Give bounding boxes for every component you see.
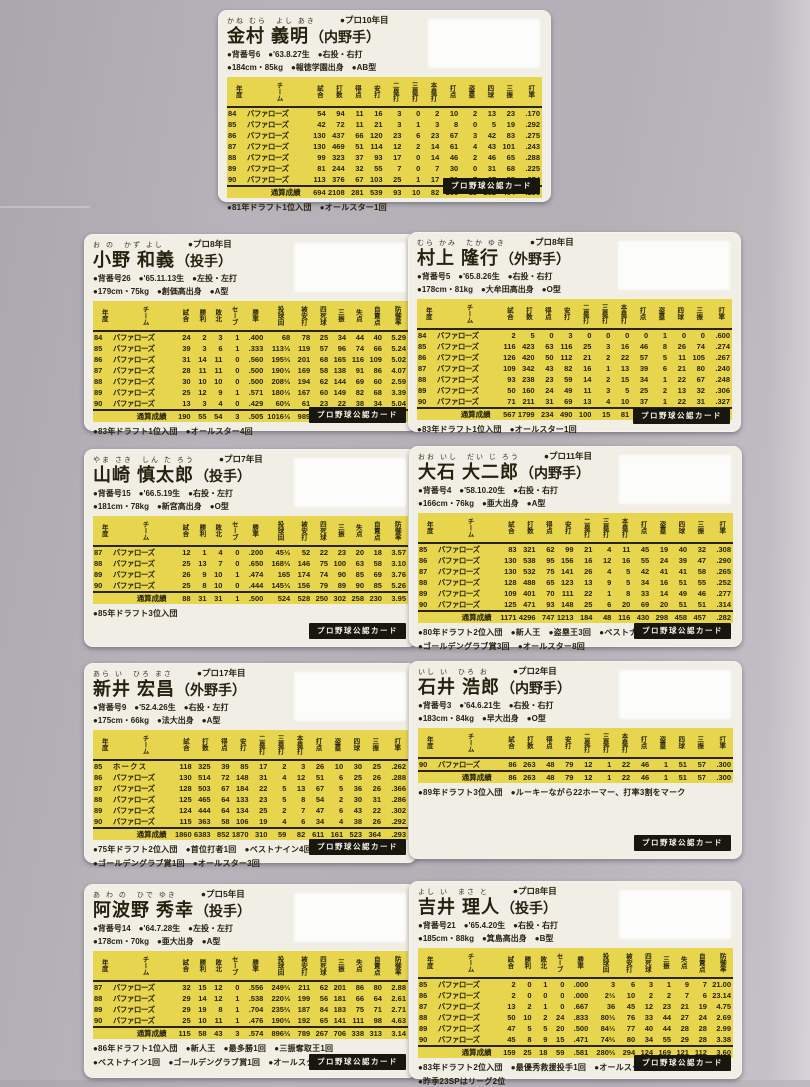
stats-cell: 88 [227, 152, 247, 163]
stats-header-cell: 勝利 [518, 948, 534, 978]
stats-cell: .290 [708, 555, 733, 566]
stats-cell: バファローズ [247, 141, 309, 152]
stats-cell: 66 [348, 993, 366, 1004]
stats-cell: 14 [193, 993, 209, 1004]
pro-year-label: ●プロ17年目 [197, 667, 246, 679]
stats-table: 年度チーム試合打数得点安打二塁打三塁打本塁打打点盗塁四球三振打率84バファローズ… [417, 299, 732, 420]
stats-cell: 88 [93, 993, 113, 1004]
stats-header-cell: 試合 [500, 513, 519, 543]
stats-header-cell: チーム [438, 728, 500, 758]
stats-cell: 3.10 [384, 558, 408, 569]
stats-cell: 111 [348, 1015, 366, 1027]
stats-cell: 65 [312, 1015, 330, 1027]
stats-header-cell: 本塁打 [612, 299, 631, 329]
stats-row: 90バファローズ2510111.476190⅔19265141111984.63 [93, 1015, 408, 1027]
stats-cell: 100 [574, 408, 593, 420]
stats-cell: 6 [594, 599, 613, 611]
stats-cell: .538 [241, 993, 265, 1004]
stats-cell: 325 [194, 760, 213, 772]
card-notes: ●85年ドラフト3位入団 [93, 608, 408, 619]
stats-cell: .274 [707, 341, 732, 352]
stats-header-cell: 三塁打 [403, 77, 422, 107]
stats-cell: 1 [650, 374, 669, 385]
stats-cell: 130 [175, 772, 194, 783]
stats-cell: 211 [292, 981, 312, 993]
stats-cell: 82 [422, 186, 441, 198]
stats-cell: 0 [224, 580, 241, 592]
stats-cell: 45 [632, 543, 651, 555]
stats-row: 88バファローズ12848865123139534165155.252 [418, 577, 733, 588]
blank-label-area [293, 242, 407, 293]
stats-cell: 42 [479, 130, 498, 141]
stats-header-cell: 自責点 [366, 516, 384, 546]
stats-cell: .286 [383, 794, 408, 805]
stats-cell: 85 [348, 569, 366, 580]
card-note: ●ゴールデングラブ賞1回 ●オールスター3回 [93, 858, 408, 869]
card-note: ●86年ドラフト1位入団 ●新人王 ●最多勝1回 ●三振奪取王1回 [93, 1043, 408, 1054]
stats-header-cell: 二塁打 [575, 728, 594, 758]
stats-cell: 55 [689, 577, 708, 588]
stats-cell: .650 [241, 558, 265, 569]
stats-cell: 6 [209, 343, 225, 354]
stats-cell: 852 [213, 828, 232, 840]
player-position: （投手） [176, 253, 232, 269]
stats-cell: 62 [538, 543, 557, 555]
stats-cell: 3 [224, 410, 241, 422]
stats-cell: 184 [576, 611, 595, 623]
stats-cell: 89 [93, 1004, 113, 1015]
stats-cell: .833 [566, 1012, 590, 1023]
stats-cell: 244 [328, 163, 347, 174]
stats-cell: 2 [460, 107, 479, 119]
stats-row: 86バファローズ13051472148314125162526.288 [93, 772, 408, 783]
stats-cell: 23 [655, 1001, 673, 1012]
stats-cell: 112 [556, 352, 575, 363]
stats-cell: 59 [556, 374, 575, 385]
stats-row: 85バファローズ39361.333113⅓119579674665.24 [93, 343, 408, 354]
stats-row: 84バファローズ25030000100.600 [417, 329, 732, 341]
card-note: ●85年ドラフト3位入団 [93, 608, 408, 619]
stats-header-cell: 本塁打 [422, 77, 441, 107]
stats-cell: 74 [688, 341, 707, 352]
stats-cell: 2.59 [384, 376, 408, 387]
pro-year-label: ●プロ11年目 [544, 450, 592, 462]
stats-cell: 13 [175, 398, 193, 410]
stats-cell: 77 [617, 1023, 637, 1034]
stats-header-cell: 勝率 [241, 516, 265, 546]
stats-cell: .277 [708, 588, 733, 599]
stats-cell: 7 [209, 558, 225, 569]
stats-cell: 11 [347, 107, 366, 119]
stats-cell: 118 [175, 760, 194, 772]
stats-row: 89バファローズ269101.474165174749085693.76 [93, 569, 408, 580]
stats-cell: 30 [345, 794, 364, 805]
stats-cell: 57 [689, 758, 708, 771]
stats-cell: 85 [418, 543, 438, 555]
stats-row: 88バファローズ3010100.500208⅔1946214469602.59 [93, 376, 408, 387]
stats-cell: 8 [650, 341, 669, 352]
stats-header-cell: 敗北 [209, 301, 225, 331]
card-note: ●81年ドラフト1位入団 ●オールスター1回 [227, 202, 542, 213]
stats-header-cell: 三振 [330, 951, 348, 981]
stats-cell: 376 [328, 174, 347, 186]
stats-table: 年度チーム試合打数得点安打二塁打三塁打本塁打打点盗塁四球三振打率85バファローズ… [418, 513, 733, 623]
stats-cell: 17 [385, 152, 404, 163]
stats-cell: 130 [500, 555, 519, 566]
stats-cell: .300 [708, 771, 733, 783]
stats-cell: 183 [330, 1004, 348, 1015]
pro-year-label: ●プロ8年目 [530, 236, 574, 248]
stats-cell: 148 [557, 599, 576, 611]
stats-cell: 523 [345, 828, 364, 840]
stats-cell: 138 [330, 365, 348, 376]
stats-cell: 46 [632, 771, 651, 783]
stats-cell: 69 [632, 599, 651, 611]
blank-label-area [618, 889, 732, 940]
stats-cell: 14 [193, 354, 209, 365]
stats-cell: 25 [385, 174, 404, 186]
stats-cell: .248 [707, 374, 732, 385]
player-name: 山崎 慎太郎 [93, 465, 194, 485]
stats-cell: .571 [241, 387, 265, 398]
stats-cell: 68 [312, 354, 330, 365]
stats-cell: 54 [307, 794, 326, 805]
stats-cell: .306 [707, 385, 732, 396]
stats-header-cell: 三塁打 [594, 513, 613, 543]
stats-header-cell: 四球 [670, 513, 689, 543]
career-total-row: 通算成績8831311.5005245282503022582303.95 [93, 592, 408, 604]
stats-cell: 3 [593, 385, 612, 396]
stats-cell: 103 [366, 174, 385, 186]
stats-cell: 8 [288, 794, 307, 805]
stats-header-cell: 三塁打 [594, 728, 613, 758]
stats-cell: 43 [345, 805, 364, 816]
card-notes: ●83年ドラフト1位入団 ●オールスター1回 [417, 424, 732, 435]
stats-cell: 37 [347, 152, 366, 163]
stats-row: 86バファローズ1305389515616121655243947.290 [418, 555, 733, 566]
stats-cell: 51 [670, 577, 689, 588]
stats-cell: 86 [93, 354, 113, 365]
pro-year-label: ●プロ5年目 [201, 888, 245, 900]
stats-cell: 109 [499, 363, 518, 374]
career-total-label: 通算成績 [93, 410, 175, 422]
player-furigana: あら い ひろ まさ [93, 669, 173, 679]
player-position: （外野手） [500, 251, 570, 267]
stats-header-cell: 三振 [689, 728, 708, 758]
stats-cell: 1 [651, 771, 670, 783]
stats-cell: 21 [574, 352, 593, 363]
stats-cell: 1 [650, 396, 669, 408]
stats-cell: .600 [707, 329, 732, 341]
stats-cell: 1 [534, 1001, 550, 1012]
stats-header-cell: 四死球 [637, 948, 655, 978]
stats-cell: 23 [537, 374, 556, 385]
stats-cell: 13 [612, 363, 631, 374]
stats-cell: 93 [538, 599, 557, 611]
stats-header-cell: 打率 [517, 77, 542, 107]
player-name: 金村 義明 [227, 26, 309, 46]
stats-cell: 55 [193, 410, 209, 422]
stats-cell: 80 [688, 363, 707, 374]
stats-header-cell: 自責点 [691, 948, 709, 978]
stats-cell: バファローズ [437, 374, 499, 385]
stats-cell: 89 [418, 1023, 438, 1034]
stats-cell: バファローズ [113, 343, 175, 354]
stats-cell: 42 [309, 119, 328, 130]
stats-cell: .225 [517, 163, 542, 174]
stats-cell: 514 [194, 772, 213, 783]
stats-cell: 51 [670, 758, 689, 771]
stats-cell: 10 [612, 396, 631, 408]
stats-header-cell: 盗塁 [326, 730, 345, 760]
stats-cell: 14 [422, 141, 441, 152]
stats-cell: 5 [479, 119, 498, 130]
stats-cell: 16 [576, 555, 595, 566]
stats-cell: 49 [670, 588, 689, 599]
stats-cell: バファローズ [247, 163, 309, 174]
stats-cell: 34 [307, 816, 326, 828]
stats-cell: 50 [499, 385, 518, 396]
stats-cell: .292 [383, 816, 408, 828]
stats-cell: 84 [312, 1004, 330, 1015]
stats-cell: 58 [689, 566, 708, 577]
stats-cell: 0 [631, 329, 650, 341]
stats-cell: 87 [93, 981, 113, 993]
stats-row: 86バファローズ13043766120236236734283.275 [227, 130, 542, 141]
stats-cell: 22 [251, 783, 270, 794]
stats-cell: 65 [538, 577, 557, 588]
stats-header-row: 年度チーム試合打数得点安打二塁打三塁打本塁打打点盗塁四球三振打率 [227, 77, 542, 107]
stats-cell: 12 [594, 555, 613, 566]
stats-cell: 15 [193, 981, 209, 993]
baseball-card-4: やま さき しん た ろう●プロ7年目山崎 慎太郎（投手）●背番号15 ●'66… [84, 449, 417, 647]
stats-cell: 55 [366, 163, 385, 174]
player-furigana: お の かず よし [93, 240, 164, 250]
stats-cell: 0 [224, 365, 241, 376]
stats-cell: .300 [708, 758, 733, 771]
stats-cell: 2 [637, 990, 655, 1001]
stats-cell: 0 [460, 119, 479, 130]
pro-year-label: ●プロ2年目 [513, 665, 557, 677]
stats-row: 85ホ ー ク ス1183253985172326103025.262 [93, 760, 408, 772]
stats-cell: .275 [517, 130, 542, 141]
stats-cell: バファローズ [113, 365, 175, 376]
stats-header-cell: セーブ [225, 951, 242, 981]
stats-cell: 2 [500, 990, 518, 1001]
stats-cell: 89 [330, 580, 348, 592]
stats-cell: 133 [232, 794, 251, 805]
card-note: ●83年ドラフト1位入団 ●オールスター4回 [93, 426, 408, 437]
stats-cell: 201 [330, 981, 348, 993]
stats-header-cell: 失点 [348, 516, 366, 546]
stats-cell: 184 [232, 783, 251, 794]
official-card-badge: プロ野球公認カード [309, 1054, 406, 1070]
stats-cell: バファローズ [438, 566, 500, 577]
stats-cell: 13 [669, 385, 688, 396]
stats-header-cell: セーブ [224, 516, 241, 546]
stats-cell: 24 [691, 1012, 709, 1023]
stats-cell: 65 [498, 152, 517, 163]
stats-row: 88バファローズ993233793170144624665.288 [227, 152, 542, 163]
stats-cell: 149 [330, 387, 348, 398]
stats-header-cell: 被安打 [617, 948, 637, 978]
stats-header-row: 年度チーム試合打数得点安打二塁打三塁打本塁打打点盗塁四球三振打率 [93, 730, 408, 760]
stats-row: 88バファローズ2914121.538220⅓1995618166642.61 [93, 993, 408, 1004]
stats-cell: 401 [519, 588, 538, 599]
stats-cell: 72 [328, 119, 347, 130]
stats-row: 90バファローズ1153635810619463443826.292 [93, 816, 408, 828]
stats-cell: 1860 [175, 828, 194, 840]
stats-cell: 76 [617, 1012, 637, 1023]
stats-cell: 3 [225, 1027, 242, 1039]
stats-cell: 116 [613, 611, 632, 623]
stats-cell: 78 [292, 331, 312, 343]
stats-cell: 9 [673, 978, 691, 990]
stats-cell: 34 [631, 374, 650, 385]
stats-cell: 74 [312, 569, 330, 580]
stats-header-cell: 打点 [632, 513, 651, 543]
stats-cell: 10 [617, 990, 637, 1001]
stats-cell: バファローズ [438, 555, 500, 566]
stats-cell: 234 [537, 408, 556, 420]
stats-cell: 532 [519, 566, 538, 577]
stats-header-cell: 防御率 [384, 516, 408, 546]
stats-cell: 1 [403, 174, 422, 186]
stats-cell: 4.63 [384, 1015, 408, 1027]
blank-label-area [293, 457, 407, 508]
stats-cell: 5 [326, 783, 345, 794]
stats-cell: 89 [417, 385, 437, 396]
stats-cell: 25 [175, 580, 193, 592]
stats-cell: 88 [93, 794, 113, 805]
stats-cell: 34 [330, 331, 348, 343]
stats-cell: 0 [518, 990, 534, 1001]
stats-header-cell: 本塁打 [613, 513, 632, 543]
stats-header-cell: 盗塁 [651, 513, 670, 543]
stats-cell: 81 [612, 408, 631, 420]
card-board: かね むら よし あき●プロ10年目金村 義明（内野手）●背番号6 ●'63.8… [0, 0, 810, 1080]
stats-header-cell: 年度 [418, 513, 438, 543]
stats-cell: 23 [251, 794, 270, 805]
stats-cell: 0 [612, 329, 631, 341]
stats-cell: 90 [418, 758, 438, 771]
stats-cell: 539 [366, 186, 385, 198]
stats-cell: 23 [422, 130, 441, 141]
stats-cell: バファローズ [113, 1015, 175, 1027]
stats-cell: 167 [292, 387, 312, 398]
stats-cell: 125 [175, 794, 194, 805]
stats-cell: 32 [688, 385, 707, 396]
stats-cell: 0 [403, 152, 422, 163]
stats-cell: 41 [651, 566, 670, 577]
stats-cell: 2 [269, 805, 288, 816]
stats-row: 89バファローズ50160244911352521332.306 [417, 385, 732, 396]
stats-cell: .333 [241, 343, 265, 354]
stats-cell: 41 [670, 566, 689, 577]
stats-cell: 101 [498, 141, 517, 152]
stats-cell: 3.76 [384, 569, 408, 580]
stats-cell: 1 [224, 343, 241, 354]
stats-cell: 5.29 [384, 331, 408, 343]
stats-cell: 4 [209, 546, 225, 558]
stats-cell: 81 [309, 163, 328, 174]
stats-cell: バファローズ [113, 981, 175, 993]
stats-cell: 5 [613, 566, 632, 577]
stats-header-cell: 年度 [417, 299, 437, 329]
stats-cell: 21 [576, 543, 595, 555]
stats-header-cell: 三振 [330, 516, 348, 546]
stats-cell: 93 [366, 152, 385, 163]
stats-cell: 281 [347, 186, 366, 198]
stats-header-cell: 自責点 [366, 301, 384, 331]
stats-cell: 68 [366, 387, 384, 398]
stats-header-cell: 四死球 [312, 516, 330, 546]
stats-table: 年度チーム試合勝利敗北セーブ勝率投球回被安打四死球三振失点自責点防御率87バファ… [93, 516, 408, 604]
stats-cell: 37 [631, 396, 650, 408]
stats-cell: 10 [518, 1012, 534, 1023]
stats-cell: 113⅓ [265, 343, 292, 354]
stats-cell: 0 [460, 163, 479, 174]
stats-cell: 13 [288, 783, 307, 794]
stats-cell: 0 [224, 398, 241, 410]
stats-cell: 469 [328, 141, 347, 152]
stats-cell: 141 [557, 566, 576, 577]
stats-cell: .471 [566, 1034, 590, 1046]
stats-cell: .288 [383, 772, 408, 783]
stats-cell: バファローズ [113, 398, 175, 410]
stats-cell: .500 [566, 1023, 590, 1034]
stats-cell: バファローズ [247, 174, 309, 186]
stats-cell: 5.26 [384, 580, 408, 592]
stats-cell: 59 [269, 828, 288, 840]
stats-header-cell: 安打 [557, 728, 576, 758]
stats-header-cell: 試合 [500, 728, 519, 758]
stats-row: 89バファローズ251291.571180⅓1676014982683.39 [93, 387, 408, 398]
stats-cell: 25 [631, 385, 650, 396]
stats-cell: 84 [227, 107, 247, 119]
stats-header-cell: 本塁打 [288, 730, 307, 760]
stats-cell: 31 [193, 592, 209, 604]
stats-cell: 6 [617, 978, 637, 990]
stats-header-row: 年度チーム試合勝利敗北セーブ勝率投球回被安打四死球三振失点自責点防御率 [93, 301, 408, 331]
stats-row: 89バファローズ475520.50084⅓77404428282.99 [418, 1023, 733, 1034]
stats-header-cell: 打点 [307, 730, 326, 760]
stats-cell: 39 [631, 363, 650, 374]
stats-cell: 1 [225, 1015, 242, 1027]
stats-header-row: 年度チーム試合打数得点安打二塁打三塁打本塁打打点盗塁四球三振打率 [418, 513, 733, 543]
blank-label-area [427, 18, 541, 69]
stats-cell: 31 [479, 163, 498, 174]
official-card-badge: プロ野球公認カード [309, 839, 406, 855]
stats-cell: 67 [347, 174, 366, 186]
stats-header-cell: 勝率 [241, 301, 265, 331]
stats-row: 87バファローズ13210.6673645122321194.75 [418, 1001, 733, 1012]
stats-cell: 6 [403, 130, 422, 141]
stats-cell: 13 [574, 396, 593, 408]
stats-cell: 3 [556, 329, 575, 341]
stats-cell: 94 [328, 107, 347, 119]
stats-cell: 208⅔ [265, 376, 292, 387]
stats-cell: 0 [224, 558, 241, 569]
stats-header-cell: 勝率 [566, 948, 590, 978]
stats-cell: 1 [651, 758, 670, 771]
player-name: 新井 宏昌 [93, 679, 175, 699]
stats-header-cell: チーム [113, 516, 175, 546]
stats-cell: 69 [366, 569, 384, 580]
stats-cell: 13 [500, 1001, 518, 1012]
stats-cell: 423 [518, 341, 537, 352]
stats-header-row: 年度チーム試合打数得点安打二塁打三塁打本塁打打点盗塁四球三振打率 [418, 728, 733, 758]
